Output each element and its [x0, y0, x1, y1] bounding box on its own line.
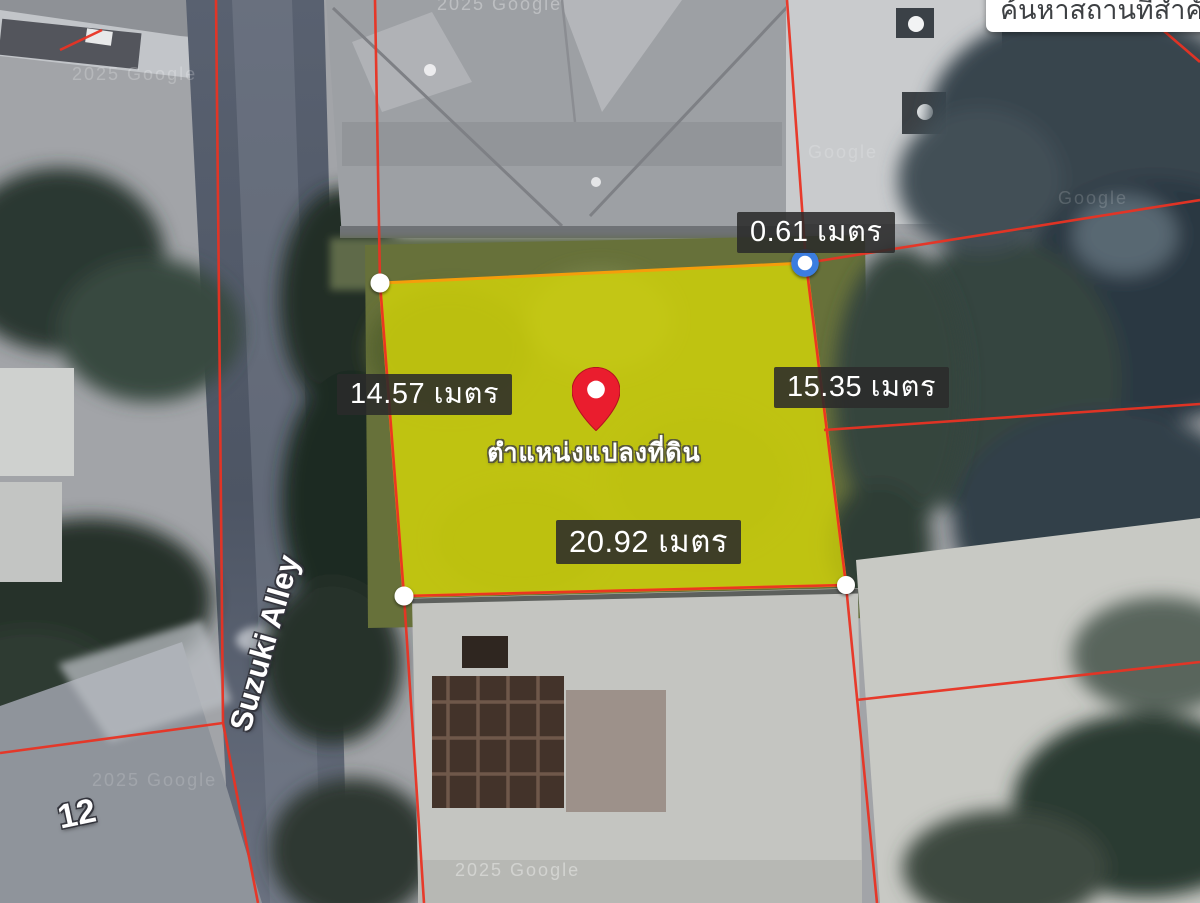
map-canvas[interactable]: ตำแหน่งแปลงที่ดิน 0.61 เมตร 14.57 เมตร 1…: [0, 0, 1200, 903]
pin-icon: [572, 367, 620, 431]
house-number-label: 12: [54, 791, 99, 837]
pin-label: ตำแหน่งแปลงที่ดิน: [444, 433, 744, 473]
location-pin[interactable]: [572, 367, 620, 431]
plot-vertex-bottom-left[interactable]: [395, 587, 414, 606]
measurement-label-bottom-side: 20.92 เมตร: [556, 520, 741, 564]
measurement-label-top-offset: 0.61 เมตร: [737, 212, 895, 253]
search-input[interactable]: ค้นหาสถานที่สำคัญ: [986, 0, 1200, 32]
plot-vertex-bottom-right[interactable]: [837, 576, 855, 594]
search-input-text: ค้นหาสถานที่สำคัญ: [1000, 0, 1200, 31]
measurement-label-right-side: 15.35 เมตร: [774, 367, 949, 408]
plot-vertex-selected[interactable]: [795, 253, 816, 274]
plot-vertex-top-left[interactable]: [371, 274, 390, 293]
measurement-label-left-side: 14.57 เมตร: [337, 374, 512, 415]
